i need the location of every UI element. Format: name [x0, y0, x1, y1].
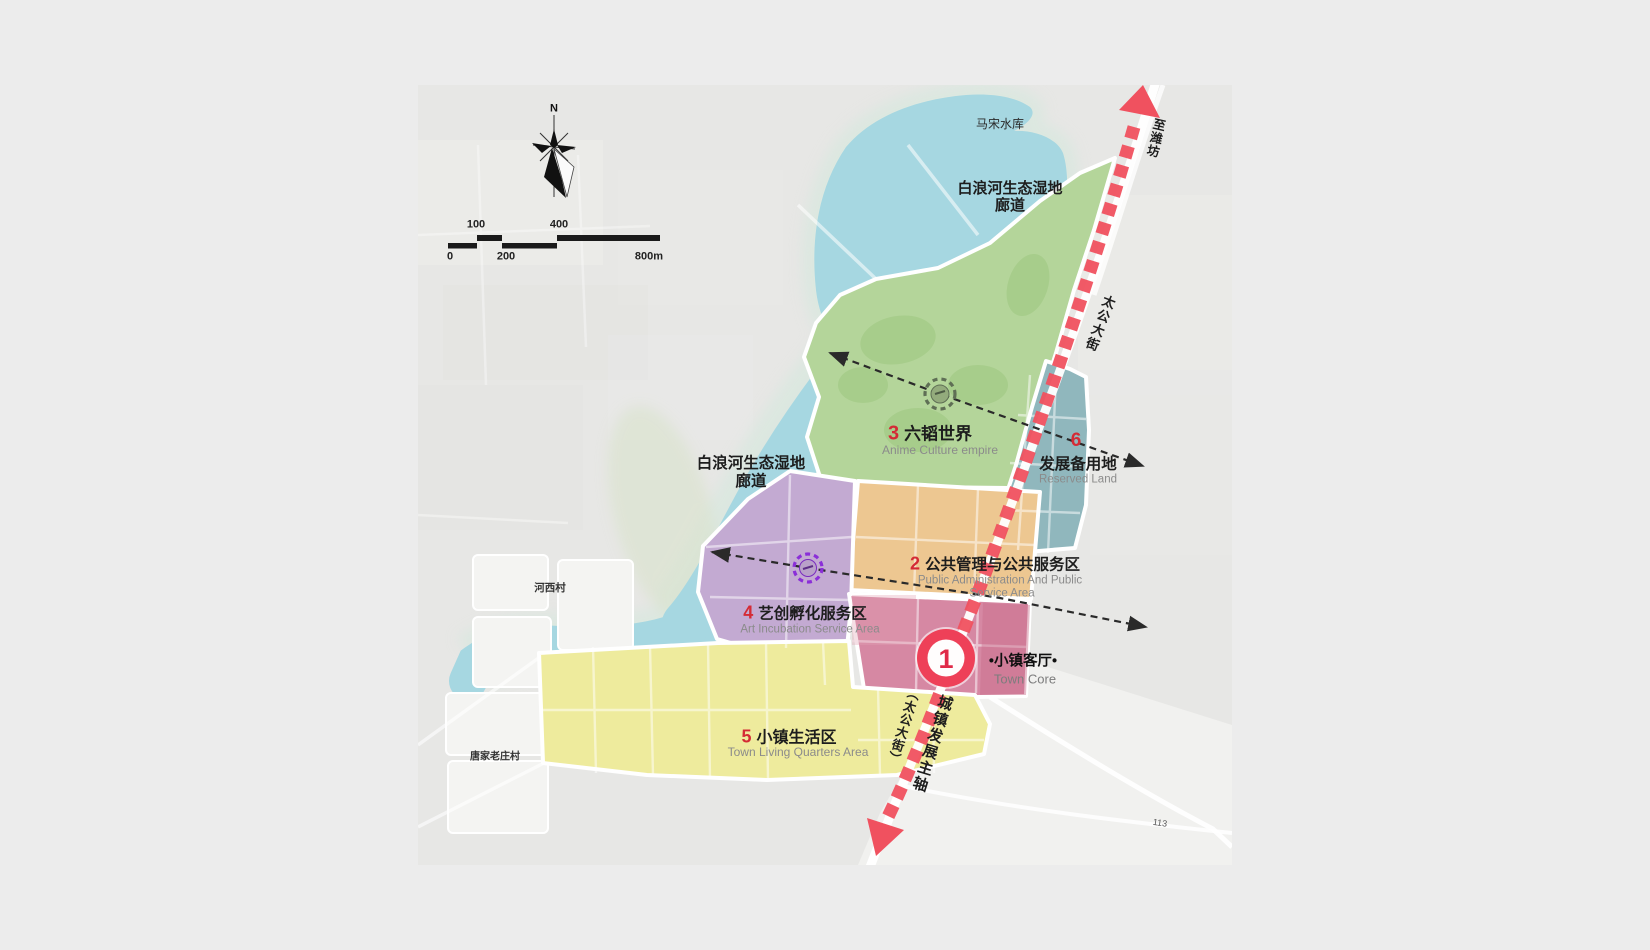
- road-113-label: 113: [1152, 817, 1168, 829]
- zone-1-label-en: Town Core: [994, 673, 1056, 688]
- zone-2-label: 2公共管理与公共服务区: [910, 553, 1080, 574]
- scale-label-400: 400: [550, 219, 568, 232]
- zone-6-label: 发展备用地: [1039, 456, 1117, 474]
- zone-2-label-en1: Public Administration And Public: [918, 574, 1082, 587]
- scale-label-200: 200: [497, 251, 515, 264]
- planning-map: 1 N 100 400 0 200 800m 马宋水库 白浪河生态: [418, 85, 1232, 865]
- scale-label-100: 100: [467, 219, 485, 232]
- zone-4-label-en: Art Incubation Service Area: [740, 623, 879, 636]
- zone-2-label-en2: Service Area: [969, 587, 1034, 600]
- scale-label-0: 0: [447, 251, 453, 264]
- wetland-label-left: 白浪河生态湿地 廊道: [697, 455, 806, 491]
- zone-1-number: 1: [938, 644, 953, 674]
- zone-3-label: 3六韬世界: [888, 423, 972, 446]
- village-tangjialaozhuang-label: 唐家老庄村: [470, 751, 520, 763]
- zone-4-label: 4艺创孵化服务区: [743, 602, 867, 623]
- village-hexi-label: 河西村: [534, 582, 566, 594]
- north-label: N: [550, 103, 558, 116]
- scale-label-800m: 800m: [635, 251, 663, 264]
- zone-3-label-en: Anime Culture empire: [882, 444, 998, 458]
- wetland-label-upper: 白浪河生态湿地 廊道: [957, 180, 1062, 215]
- zone-1-badge: 1: [915, 627, 977, 689]
- screenshot-stage: { "map": { "compass_north": "N", "scale_…: [0, 0, 1650, 950]
- zone-1-label: •小镇客厅•: [989, 654, 1057, 671]
- zone-5-label-en: Town Living Quarters Area: [728, 746, 869, 760]
- zone-6-number: 6: [1071, 430, 1082, 452]
- zone-6-label-en: Reserved Land: [1039, 473, 1117, 486]
- reservoir-label: 马宋水库: [976, 118, 1024, 132]
